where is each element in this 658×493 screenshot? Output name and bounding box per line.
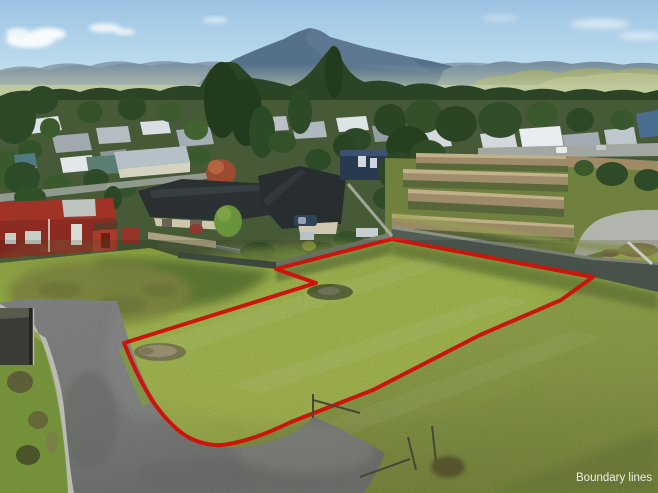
svg-text:Boundary lines: Boundary lines — [576, 472, 652, 484]
